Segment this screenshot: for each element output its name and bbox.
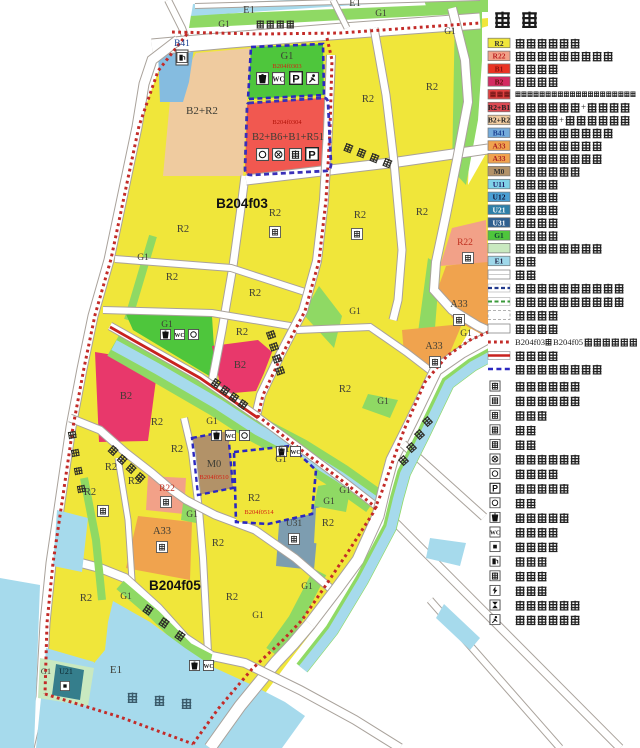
svg-text:B204f03: B204f03 (515, 337, 545, 347)
svg-text:R2: R2 (494, 39, 503, 48)
svg-text:G1: G1 (377, 397, 389, 407)
svg-text:G1: G1 (339, 486, 351, 496)
svg-text:B204f05: B204f05 (149, 578, 201, 593)
svg-text:M0: M0 (207, 459, 222, 470)
svg-text:R2: R2 (354, 210, 366, 221)
svg-text:B204f05: B204f05 (553, 337, 583, 347)
svg-text:B204f0304: B204f0304 (272, 119, 302, 126)
svg-text:B1: B1 (495, 64, 504, 73)
svg-text:G1: G1 (41, 666, 51, 676)
svg-text:B41: B41 (493, 129, 506, 138)
svg-text:R22: R22 (457, 238, 473, 248)
svg-text:B2: B2 (120, 391, 132, 402)
svg-text:G1: G1 (494, 231, 504, 240)
svg-text:B204f0514: B204f0514 (244, 509, 274, 516)
svg-text:G1: G1 (275, 455, 287, 465)
svg-text:R2: R2 (426, 82, 438, 93)
svg-text:R22: R22 (493, 52, 506, 61)
svg-text:G1: G1 (375, 9, 387, 19)
svg-text:G1: G1 (252, 611, 264, 621)
svg-text:G1: G1 (444, 27, 456, 37)
svg-text:R2: R2 (171, 444, 183, 455)
svg-text:U21: U21 (59, 667, 73, 676)
svg-text:R2: R2 (84, 487, 96, 498)
svg-text:A33: A33 (493, 154, 506, 163)
svg-text:R2: R2 (362, 94, 374, 105)
svg-text:U11: U11 (493, 180, 506, 189)
svg-text:A33: A33 (153, 526, 171, 537)
svg-text:B41: B41 (174, 39, 190, 49)
svg-text:G1: G1 (323, 497, 335, 507)
svg-text:G1: G1 (206, 417, 218, 427)
svg-text:G1: G1 (349, 307, 361, 317)
svg-text:R2+B1: R2+B1 (488, 103, 510, 112)
svg-text:G1: G1 (460, 329, 472, 339)
svg-text:G1: G1 (218, 20, 230, 30)
svg-text:B204f0510: B204f0510 (199, 474, 228, 481)
svg-text:R2: R2 (236, 327, 248, 338)
svg-text:+: + (559, 115, 564, 125)
svg-text:G1: G1 (137, 253, 149, 263)
svg-text:M0: M0 (494, 167, 505, 176)
svg-text:G1: G1 (281, 51, 294, 62)
svg-text:R2: R2 (166, 272, 178, 283)
svg-text:U31: U31 (286, 519, 303, 529)
svg-text:R2: R2 (269, 208, 281, 219)
svg-text:G1: G1 (186, 510, 198, 520)
svg-text:U31: U31 (493, 218, 506, 227)
svg-text:A33: A33 (450, 299, 467, 310)
svg-text:G1: G1 (301, 582, 313, 592)
svg-text:A33: A33 (425, 341, 442, 352)
svg-text:B2: B2 (234, 360, 246, 371)
svg-text:R2: R2 (226, 592, 238, 603)
svg-text:E1: E1 (243, 5, 255, 16)
svg-text:R2: R2 (105, 462, 117, 473)
svg-text:+: + (581, 102, 586, 112)
svg-text:R2: R2 (249, 288, 261, 299)
svg-text:B204f03: B204f03 (216, 196, 268, 211)
svg-text:E1: E1 (495, 257, 504, 266)
svg-text:B2: B2 (495, 77, 504, 86)
svg-text:R2: R2 (151, 417, 163, 428)
svg-text:R2: R2 (322, 518, 334, 529)
svg-text:G1: G1 (161, 320, 173, 330)
svg-text:R22: R22 (159, 484, 175, 494)
svg-text:R2: R2 (248, 493, 260, 504)
svg-text:R2: R2 (212, 538, 224, 549)
svg-text:A33: A33 (493, 141, 506, 150)
svg-text:B2+R2: B2+R2 (488, 116, 510, 125)
svg-text:B2+R2: B2+R2 (186, 105, 218, 117)
svg-text:B2+B6+B1+R51: B2+B6+B1+R51 (252, 132, 324, 143)
svg-text:U12: U12 (493, 193, 506, 202)
svg-text:E1: E1 (110, 664, 122, 676)
svg-text:R2: R2 (339, 384, 351, 395)
svg-text:R2: R2 (177, 224, 189, 235)
svg-text:U21: U21 (493, 206, 506, 215)
svg-text:G1: G1 (278, 445, 290, 455)
svg-text:B204f0303: B204f0303 (272, 63, 301, 70)
svg-text:R2: R2 (80, 593, 92, 604)
svg-text:E1: E1 (349, 0, 361, 9)
svg-text:R2: R2 (416, 207, 428, 218)
svg-text:G1: G1 (120, 592, 132, 602)
